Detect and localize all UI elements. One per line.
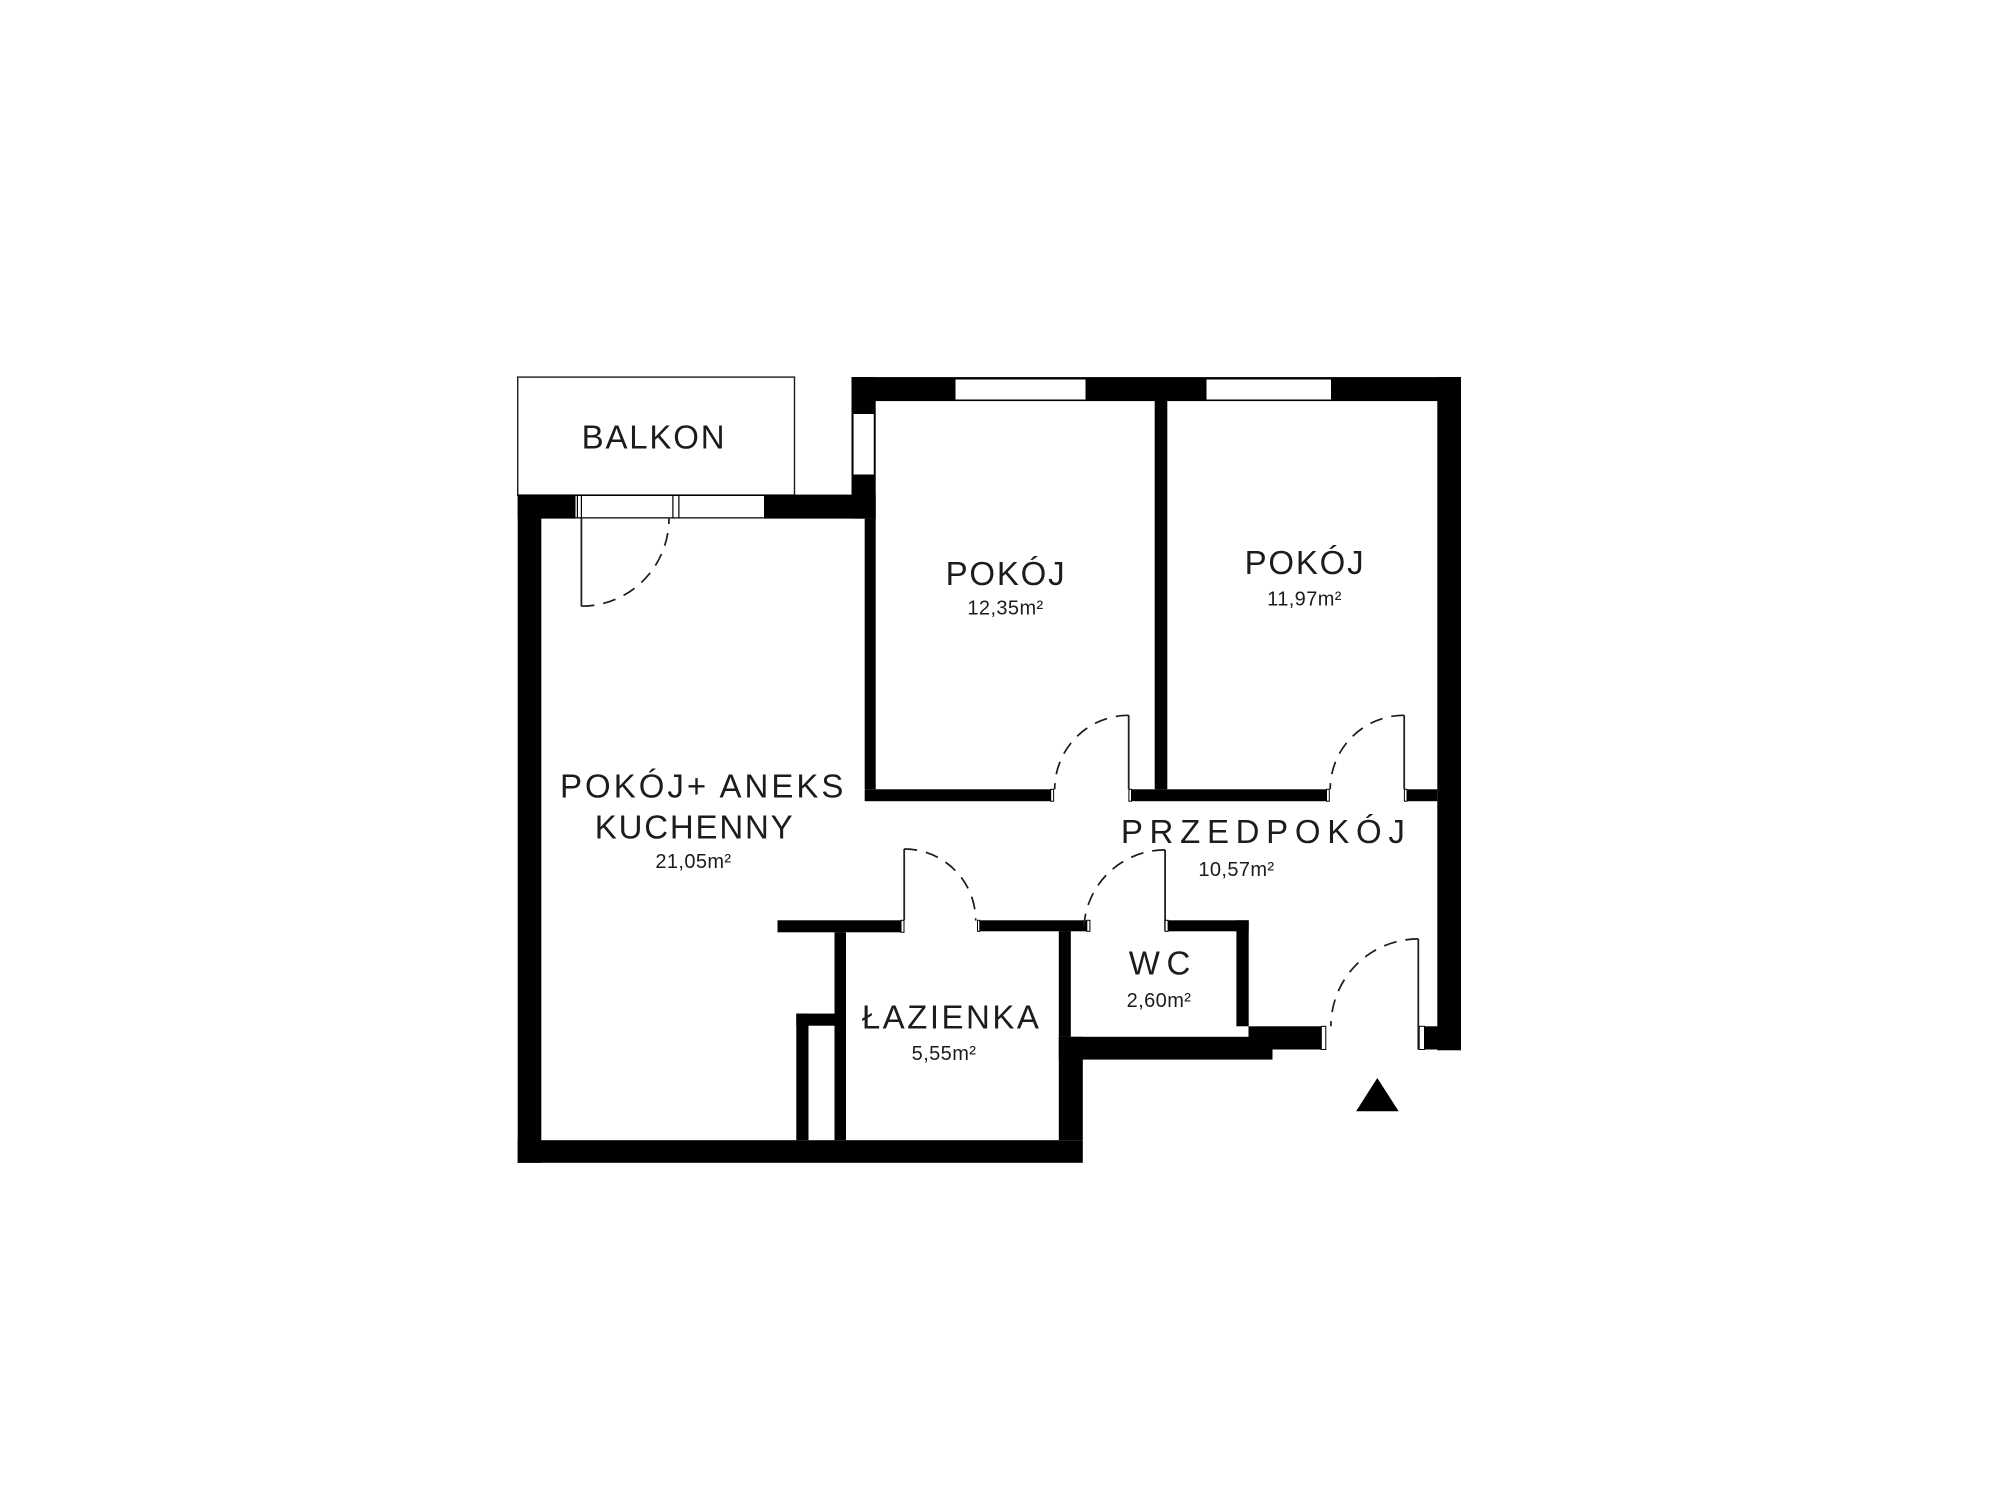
svg-text:5,55m²: 5,55m² xyxy=(912,1043,977,1065)
svg-text:10,57m²: 10,57m² xyxy=(1198,859,1274,881)
svg-text:KUCHENNY: KUCHENNY xyxy=(595,808,795,845)
svg-text:11,97m²: 11,97m² xyxy=(1267,589,1342,611)
svg-text:12,35m²: 12,35m² xyxy=(967,598,1043,620)
svg-text:2,60m²: 2,60m² xyxy=(1127,990,1192,1012)
svg-text:21,05m²: 21,05m² xyxy=(655,851,731,873)
svg-text:WC: WC xyxy=(1129,945,1197,982)
svg-text:POKÓJ: POKÓJ xyxy=(1245,544,1366,581)
svg-text:ŁAZIENKA: ŁAZIENKA xyxy=(862,999,1042,1036)
svg-text:PRZEDPOKÓJ: PRZEDPOKÓJ xyxy=(1121,813,1412,850)
svg-text:POKÓJ: POKÓJ xyxy=(946,555,1067,592)
svg-text:POKÓJ+ ANEKS: POKÓJ+ ANEKS xyxy=(560,768,846,805)
svg-text:BALKON: BALKON xyxy=(582,419,727,456)
